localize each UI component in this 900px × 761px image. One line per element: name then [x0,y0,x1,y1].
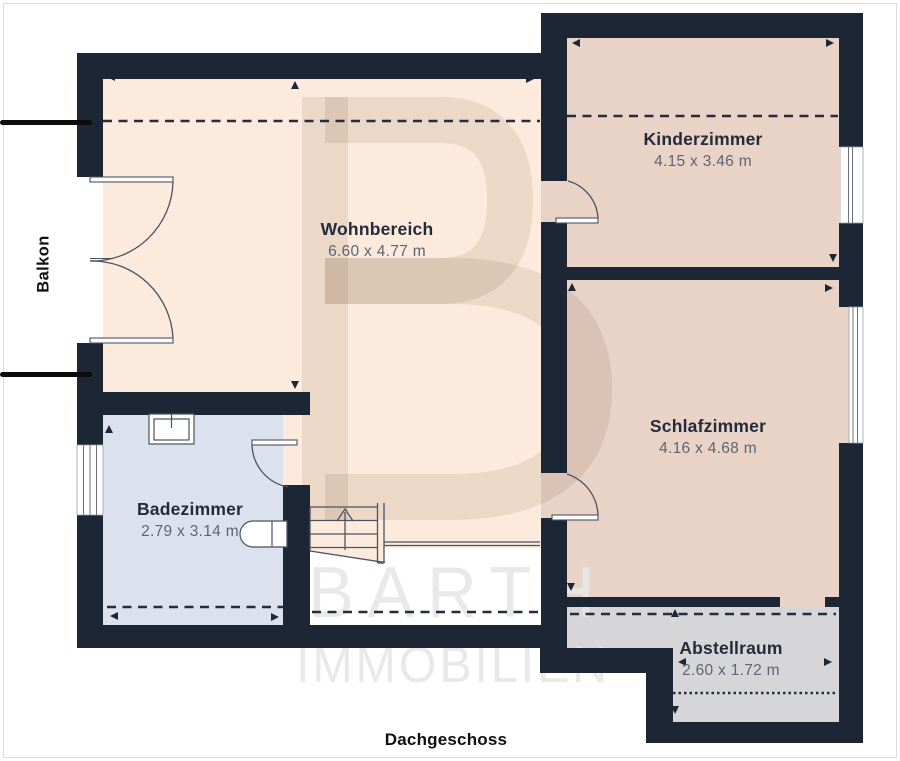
badezimmer-floor [103,415,283,625]
schlafzimmer-floor [567,280,839,597]
kinderzimmer-window [840,147,863,223]
floorplan-page: BARTH IMMOBILIEN [0,0,900,761]
sink-icon [149,414,194,444]
bathtub-icon [240,521,287,547]
kinderzimmer-floor [567,38,839,267]
schlafzimmer-window [839,307,863,443]
badezimmer-window [77,445,103,515]
floorplan-drawing: BARTH IMMOBILIEN [0,0,900,761]
